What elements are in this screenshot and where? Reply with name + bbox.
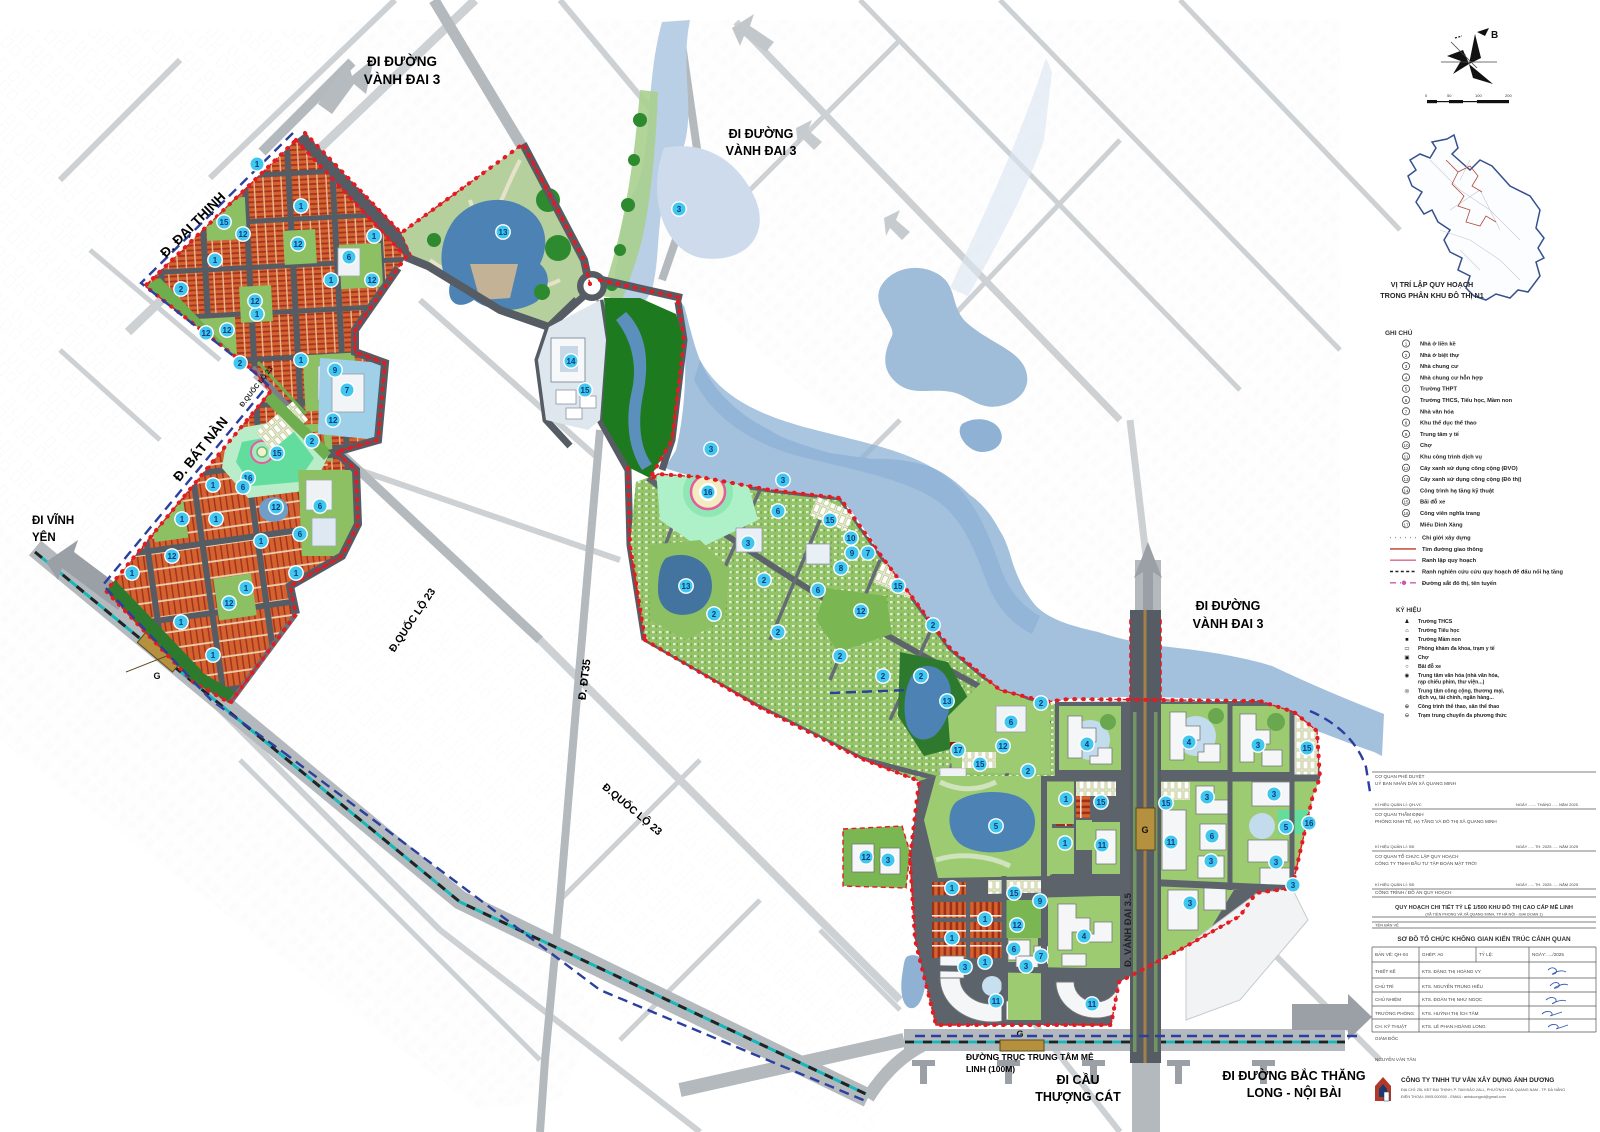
svg-text:G: G xyxy=(1141,825,1148,835)
svg-text:ĐI ĐƯỜNG: ĐI ĐƯỜNG xyxy=(367,54,437,69)
svg-text:2: 2 xyxy=(881,672,886,681)
svg-text:6: 6 xyxy=(816,586,821,595)
svg-text:13: 13 xyxy=(1403,477,1409,482)
svg-text:LINH (100M): LINH (100M) xyxy=(966,1064,1015,1074)
svg-text:12: 12 xyxy=(239,230,248,239)
svg-text:Nhà văn hóa: Nhà văn hóa xyxy=(1420,409,1455,415)
svg-text:Ranh nghiên cứu cứu quy hoạch: Ranh nghiên cứu cứu quy hoạch để đấu nối… xyxy=(1422,569,1563,576)
svg-text:6: 6 xyxy=(347,253,352,262)
svg-text:⊖: ⊖ xyxy=(1405,713,1410,719)
svg-text:1: 1 xyxy=(214,515,219,524)
svg-text:3: 3 xyxy=(1256,741,1261,750)
svg-text:12: 12 xyxy=(251,297,260,306)
svg-text:1: 1 xyxy=(259,537,264,546)
svg-text:Chợ: Chợ xyxy=(1420,443,1433,449)
svg-text:14: 14 xyxy=(1403,488,1409,493)
svg-text:11: 11 xyxy=(1167,838,1176,847)
svg-text:Trung tâm y tế: Trung tâm y tế xyxy=(1420,431,1460,438)
svg-text:Bãi đỗ xe: Bãi đỗ xe xyxy=(1418,663,1441,670)
svg-text:ĐIỆN THOẠI: 0905.000000 - EM: ĐIỆN THOẠI: 0905.000000 - EMAIL: anhduon… xyxy=(1401,1094,1506,1099)
svg-text:13: 13 xyxy=(943,697,952,706)
svg-text:CƠ QUAN PHÊ DUYỆT: CƠ QUAN PHÊ DUYỆT xyxy=(1375,772,1425,779)
svg-text:ĐỊA CHỈ: 25L KĐT ĐẠI THỊNH, P.: ĐỊA CHỈ: 25L KĐT ĐẠI THỊNH, P. TAM ĐẢO 2… xyxy=(1401,1087,1565,1092)
svg-text:17: 17 xyxy=(1403,522,1409,527)
svg-text:VÀNH ĐAI 3: VÀNH ĐAI 3 xyxy=(364,72,441,87)
svg-text:12: 12 xyxy=(168,552,177,561)
svg-text:9: 9 xyxy=(1405,432,1408,437)
svg-text:YÊN: YÊN xyxy=(32,531,56,544)
svg-text:2: 2 xyxy=(776,628,781,637)
svg-text:6: 6 xyxy=(1210,832,1215,841)
svg-text:PHÒNG KINH TẾ, HẠ TẦNG VÀ ĐÔ T: PHÒNG KINH TẾ, HẠ TẦNG VÀ ĐÔ THỊ XÃ QUAN… xyxy=(1375,818,1497,824)
svg-text:12: 12 xyxy=(857,607,866,616)
svg-text:CƠ QUAN TỔ CHỨC LẬP QUY HOẠCH: CƠ QUAN TỔ CHỨC LẬP QUY HOẠCH xyxy=(1375,853,1458,859)
svg-text:11: 11 xyxy=(1098,841,1107,850)
svg-text:4: 4 xyxy=(1085,740,1090,749)
svg-text:KÍ HIỆU QUẢN LÍ: QH-VC: KÍ HIỆU QUẢN LÍ: QH-VC xyxy=(1375,802,1422,807)
svg-text:1: 1 xyxy=(255,160,260,169)
svg-text:15: 15 xyxy=(1162,799,1171,808)
svg-text:Trường Mầm non: Trường Mầm non xyxy=(1418,637,1461,643)
svg-text:9: 9 xyxy=(850,549,855,558)
svg-text:3: 3 xyxy=(1272,790,1277,799)
svg-text:1: 1 xyxy=(983,958,988,967)
svg-text:1: 1 xyxy=(180,515,185,524)
svg-text:GHI CHÚ: GHI CHÚ xyxy=(1385,328,1413,337)
svg-text:3: 3 xyxy=(1024,962,1029,971)
svg-text:2: 2 xyxy=(712,610,717,619)
svg-text:3: 3 xyxy=(1291,881,1296,890)
svg-text:12: 12 xyxy=(202,329,211,338)
svg-text:Trường THPT: Trường THPT xyxy=(1420,387,1457,393)
svg-text:Công trình hạ tầng kỹ thuật: Công trình hạ tầng kỹ thuật xyxy=(1420,488,1494,494)
svg-text:17: 17 xyxy=(954,746,963,755)
svg-text:1: 1 xyxy=(130,569,135,578)
svg-text:12: 12 xyxy=(225,599,234,608)
svg-text:▭: ▭ xyxy=(1404,646,1410,652)
svg-text:6: 6 xyxy=(1012,945,1017,954)
svg-text:1: 1 xyxy=(211,481,216,490)
svg-text:KÍ HIỆU QUẢN LÍ: SĐ: KÍ HIỆU QUẢN LÍ: SĐ xyxy=(1375,844,1414,849)
svg-text:◎: ◎ xyxy=(1405,688,1410,694)
svg-text:Chỉ giới xây dựng: Chỉ giới xây dựng xyxy=(1422,536,1471,542)
svg-text:1: 1 xyxy=(244,584,249,593)
svg-text:15: 15 xyxy=(1403,500,1409,505)
svg-text:CHỦ TRÌ: CHỦ TRÌ xyxy=(1375,983,1394,989)
svg-text:GIÁM ĐỐC: GIÁM ĐỐC xyxy=(1375,1035,1399,1041)
svg-text:15: 15 xyxy=(273,449,282,458)
svg-text:4: 4 xyxy=(1187,738,1192,747)
svg-text:Phòng khám đa khoa, trạm y tế: Phòng khám đa khoa, trạm y tế xyxy=(1418,645,1495,652)
svg-text:2: 2 xyxy=(310,437,315,446)
svg-text:2: 2 xyxy=(762,576,767,585)
svg-text:(XÃ TIỀN PHONG VÀ XÃ QUANG MIN: (XÃ TIỀN PHONG VÀ XÃ QUANG MINH, TP HÀ N… xyxy=(1425,912,1543,917)
svg-text:Nhà chung cư: Nhà chung cư xyxy=(1420,364,1459,370)
svg-text:5: 5 xyxy=(1284,823,1289,832)
svg-text:♟: ♟ xyxy=(1404,618,1409,625)
svg-text:8: 8 xyxy=(1405,421,1408,426)
svg-text:7: 7 xyxy=(345,386,350,395)
svg-text:15: 15 xyxy=(1010,889,1019,898)
svg-text:1: 1 xyxy=(211,651,216,660)
svg-text:1: 1 xyxy=(294,569,299,578)
svg-text:LONG - NỘI BÀI: LONG - NỘI BÀI xyxy=(1247,1085,1341,1100)
svg-text:6: 6 xyxy=(776,507,781,516)
svg-text:2: 2 xyxy=(1405,353,1408,358)
svg-text:CƠ QUAN THẨM ĐỊNH: CƠ QUAN THẨM ĐỊNH xyxy=(1375,811,1424,817)
svg-text:Đường sắt đô thị, tên tuyến: Đường sắt đô thị, tên tuyến xyxy=(1422,580,1497,587)
svg-text:1: 1 xyxy=(372,232,377,241)
svg-text:Trạm trung chuyển đa phương th: Trạm trung chuyển đa phương thức xyxy=(1418,712,1507,719)
svg-text:NGÀY: ..../2025: NGÀY: ..../2025 xyxy=(1532,951,1564,957)
svg-text:B: B xyxy=(1491,30,1498,41)
svg-text:10: 10 xyxy=(1403,443,1409,448)
svg-text:Nhà chung cư hỗn hợp: Nhà chung cư hỗn hợp xyxy=(1420,374,1483,381)
svg-text:NGÀY ....... THÁNG ..... NĂM 2: NGÀY ....... THÁNG ..... NĂM 2025 xyxy=(1516,802,1579,807)
svg-text:Khu thể dục thể thao: Khu thể dục thể thao xyxy=(1420,420,1477,427)
svg-text:1: 1 xyxy=(299,356,304,365)
svg-text:KTS. ĐẶNG THỊ HOÀNG VY: KTS. ĐẶNG THỊ HOÀNG VY xyxy=(1422,968,1481,974)
svg-text:KTS. ĐOÀN THỊ NHƯ NGỌC: KTS. ĐOÀN THỊ NHƯ NGỌC xyxy=(1422,996,1483,1002)
svg-text:4: 4 xyxy=(1405,375,1408,380)
svg-text:3: 3 xyxy=(677,205,682,214)
svg-text:3: 3 xyxy=(963,963,968,972)
svg-text:VÀNH ĐAI 3: VÀNH ĐAI 3 xyxy=(1193,616,1264,631)
svg-text:ĐƯỜNG TRỤC TRUNG TÂM MÊ: ĐƯỜNG TRỤC TRUNG TÂM MÊ xyxy=(966,1051,1094,1062)
svg-text:12: 12 xyxy=(999,742,1008,751)
svg-text:2: 2 xyxy=(838,652,843,661)
svg-text:Trung tâm công cộng, thương mạ: Trung tâm công cộng, thương mại, xyxy=(1418,688,1505,694)
svg-text:1: 1 xyxy=(179,618,184,627)
svg-text:TÊN BẢN VẼ: TÊN BẢN VẼ xyxy=(1375,923,1399,928)
svg-text:○: ○ xyxy=(1405,664,1408,670)
svg-text:TRƯỞNG PHÒNG: TRƯỞNG PHÒNG xyxy=(1375,1010,1414,1016)
svg-text:ĐI ĐƯỜNG: ĐI ĐƯỜNG xyxy=(1196,598,1261,613)
svg-text:13: 13 xyxy=(682,582,691,591)
svg-text:8: 8 xyxy=(839,564,844,573)
svg-text:Bãi đỗ xe: Bãi đỗ xe xyxy=(1420,499,1445,506)
svg-text:1: 1 xyxy=(950,884,955,893)
svg-text:NGÀY ..... TH. 2025 ..... NĂM: NGÀY ..... TH. 2025 ..... NĂM 2025 xyxy=(1516,882,1579,887)
svg-text:16: 16 xyxy=(1403,511,1409,516)
svg-text:11: 11 xyxy=(1404,455,1409,460)
svg-text:ĐI VĨNH: ĐI VĨNH xyxy=(32,514,74,527)
svg-text:CHỦ NHIỆM: CHỦ NHIỆM xyxy=(1375,995,1401,1002)
svg-text:2: 2 xyxy=(238,359,243,368)
svg-text:Công viên nghĩa trang: Công viên nghĩa trang xyxy=(1420,511,1481,517)
svg-text:1: 1 xyxy=(1405,342,1408,347)
svg-text:2: 2 xyxy=(931,621,936,630)
svg-text:Đ. VÀNH ĐAI 3.5: Đ. VÀNH ĐAI 3.5 xyxy=(1123,892,1134,967)
svg-text:⊕: ⊕ xyxy=(1405,704,1410,710)
svg-text:12: 12 xyxy=(272,503,281,512)
svg-text:6: 6 xyxy=(318,502,323,511)
svg-text:Trung tâm văn hóa (nhà văn hóa: Trung tâm văn hóa (nhà văn hóa, xyxy=(1418,673,1500,679)
svg-text:16: 16 xyxy=(704,488,713,497)
svg-text:15: 15 xyxy=(894,582,903,591)
svg-text:ĐI ĐƯỜNG: ĐI ĐƯỜNG xyxy=(729,126,794,141)
svg-text:ĐI ĐƯỜNG BẮC THĂNG: ĐI ĐƯỜNG BẮC THĂNG xyxy=(1222,1068,1365,1083)
svg-text:TỶ LỆ:: TỶ LỆ: xyxy=(1479,950,1493,957)
svg-text:ĐI CẦU: ĐI CẦU xyxy=(1056,1072,1099,1087)
svg-text:3: 3 xyxy=(746,539,751,548)
svg-text:QUY HOẠCH CHI TIẾT TỶ LỆ 1/500: QUY HOẠCH CHI TIẾT TỶ LỆ 1/500 KHU ĐÔ TH… xyxy=(1395,903,1573,911)
svg-text:CÔNG TY TNHH ĐẦU TƯ TẬP ĐOÀN M: CÔNG TY TNHH ĐẦU TƯ TẬP ĐOÀN MẶT TRỜI xyxy=(1375,860,1477,866)
svg-text:15: 15 xyxy=(1303,744,1312,753)
svg-text:Trường THCS, Tiểu học, Mầm non: Trường THCS, Tiểu học, Mầm non xyxy=(1420,397,1513,404)
svg-text:12: 12 xyxy=(368,276,377,285)
svg-text:7: 7 xyxy=(866,549,871,558)
svg-text:5: 5 xyxy=(1405,387,1408,392)
svg-text:VỊ TRÍ LẬP QUY HOẠCH: VỊ TRÍ LẬP QUY HOẠCH xyxy=(1391,280,1473,289)
svg-text:15: 15 xyxy=(581,386,590,395)
svg-text:Khu công trình dịch vụ: Khu công trình dịch vụ xyxy=(1420,455,1482,461)
svg-text:12: 12 xyxy=(1403,466,1409,471)
svg-text:◉: ◉ xyxy=(1405,673,1410,679)
svg-text:6: 6 xyxy=(241,483,246,492)
svg-text:1: 1 xyxy=(299,202,304,211)
svg-text:200: 200 xyxy=(1505,93,1512,98)
svg-text:10: 10 xyxy=(847,534,856,543)
svg-text:⌂: ⌂ xyxy=(1405,628,1408,634)
svg-text:2: 2 xyxy=(1039,699,1044,708)
svg-text:3: 3 xyxy=(1405,364,1408,369)
svg-text:THIẾT KẾ: THIẾT KẾ xyxy=(1375,968,1396,974)
svg-text:15: 15 xyxy=(1097,798,1106,807)
svg-text:G: G xyxy=(153,671,160,681)
svg-text:15: 15 xyxy=(976,760,985,769)
svg-text:THƯỢNG CÁT: THƯỢNG CÁT xyxy=(1035,1089,1121,1104)
svg-text:7: 7 xyxy=(1405,409,1408,414)
svg-text:3: 3 xyxy=(1274,858,1279,867)
svg-text:Trường THCS: Trường THCS xyxy=(1418,619,1453,625)
svg-text:KTS. NGUYỄN TRUNG HIẾU: KTS. NGUYỄN TRUNG HIẾU xyxy=(1422,983,1483,989)
svg-text:NGUYỄN VĂN TÂN: NGUYỄN VĂN TÂN xyxy=(1375,1056,1416,1062)
svg-text:6: 6 xyxy=(1009,718,1014,727)
svg-text:▣: ▣ xyxy=(1404,655,1410,661)
svg-text:Cây xanh sử dụng công cộng (ĐV: Cây xanh sử dụng công cộng (ĐVO) xyxy=(1420,466,1518,472)
svg-text:Nhà ở biệt thự: Nhà ở biệt thự xyxy=(1420,353,1460,359)
svg-text:50: 50 xyxy=(1447,93,1452,98)
svg-text:rạp chiếu phim, thư viện...): rạp chiếu phim, thư viện...) xyxy=(1418,678,1485,685)
svg-text:3: 3 xyxy=(709,445,714,454)
svg-text:Công trình thể thao, sân thể t: Công trình thể thao, sân thể thao xyxy=(1418,703,1499,710)
svg-text:12: 12 xyxy=(223,326,232,335)
svg-text:3: 3 xyxy=(781,476,786,485)
svg-text:7: 7 xyxy=(1039,952,1044,961)
svg-text:12: 12 xyxy=(294,240,303,249)
svg-text:14: 14 xyxy=(567,357,576,366)
svg-text:NGÀY ..... TH. 2025 ..... NĂM: NGÀY ..... TH. 2025 ..... NĂM 2025 xyxy=(1516,844,1579,849)
svg-text:2: 2 xyxy=(919,672,924,681)
svg-text:dịch vụ, tài chính, ngân hàng.: dịch vụ, tài chính, ngân hàng... xyxy=(1418,695,1494,701)
svg-text:TRONG PHÂN KHU ĐÔ THỊ N1: TRONG PHÂN KHU ĐÔ THỊ N1 xyxy=(1380,291,1483,300)
svg-text:GHÉP: A0: GHÉP: A0 xyxy=(1422,951,1443,957)
svg-text:Ranh lập quy hoạch: Ranh lập quy hoạch xyxy=(1422,558,1477,564)
svg-text:9: 9 xyxy=(1038,897,1043,906)
svg-text:Tim đường giao thông: Tim đường giao thông xyxy=(1422,547,1483,553)
svg-text:KÍ HIỆU QUẢN LÍ: SĐ: KÍ HIỆU QUẢN LÍ: SĐ xyxy=(1375,882,1414,887)
svg-text:1: 1 xyxy=(255,310,260,319)
svg-text:13: 13 xyxy=(499,228,508,237)
svg-text:BẢN VẼ: QH-04: BẢN VẼ: QH-04 xyxy=(1375,951,1408,957)
svg-text:1: 1 xyxy=(950,934,955,943)
svg-text:KTS. HUỲNH THỊ ÍCH TÂM: KTS. HUỲNH THỊ ÍCH TÂM xyxy=(1422,1010,1479,1016)
svg-text:KTS. LÊ PHAN HOÀNG LONG: KTS. LÊ PHAN HOÀNG LONG xyxy=(1422,1022,1486,1029)
svg-text:1: 1 xyxy=(1064,795,1069,804)
svg-text:2: 2 xyxy=(1026,767,1031,776)
svg-text:15: 15 xyxy=(220,218,229,227)
svg-text:12: 12 xyxy=(862,853,871,862)
svg-text:1: 1 xyxy=(983,915,988,924)
svg-text:3: 3 xyxy=(1188,899,1193,908)
svg-text:1: 1 xyxy=(1063,839,1068,848)
svg-text:2: 2 xyxy=(179,285,184,294)
svg-text:11: 11 xyxy=(1088,1000,1097,1009)
svg-text:6: 6 xyxy=(1405,398,1408,403)
svg-text:KÝ HIỆU: KÝ HIỆU xyxy=(1396,606,1422,614)
svg-text:Miếu Dinh Xàng: Miếu Dinh Xàng xyxy=(1420,521,1463,528)
svg-text:G: G xyxy=(1016,1029,1023,1039)
svg-text:VÀNH ĐAI 3: VÀNH ĐAI 3 xyxy=(726,143,797,158)
svg-text:Chợ: Chợ xyxy=(1418,655,1429,661)
svg-text:1: 1 xyxy=(213,256,218,265)
svg-text:Trường Tiểu học: Trường Tiểu học xyxy=(1418,627,1459,634)
svg-text:100: 100 xyxy=(1475,93,1482,98)
svg-text:1: 1 xyxy=(329,276,334,285)
svg-text:11: 11 xyxy=(992,997,1001,1006)
svg-text:4: 4 xyxy=(1082,932,1087,941)
svg-text:3: 3 xyxy=(1205,793,1210,802)
svg-text:UỶ BAN NHÂN DÂN XÃ QUANG MINH: UỶ BAN NHÂN DÂN XÃ QUANG MINH xyxy=(1375,780,1456,786)
svg-text:5: 5 xyxy=(994,822,999,831)
svg-text:Nhà ở liền kề: Nhà ở liền kề xyxy=(1420,342,1456,348)
svg-text:3: 3 xyxy=(1209,857,1214,866)
svg-text:15: 15 xyxy=(826,516,835,525)
svg-text:12: 12 xyxy=(329,416,338,425)
svg-text:9: 9 xyxy=(333,366,338,375)
svg-text:3: 3 xyxy=(886,856,891,865)
svg-text:16: 16 xyxy=(1305,819,1314,828)
svg-text:Cây xanh sử dụng công cộng (Đô: Cây xanh sử dụng công cộng (Đô thị) xyxy=(1420,477,1522,483)
svg-text:6: 6 xyxy=(298,530,303,539)
svg-text:CÔNG TRÌNH / ĐỒ ÁN QUY HOẠCH: CÔNG TRÌNH / ĐỒ ÁN QUY HOẠCH xyxy=(1375,889,1451,895)
svg-text:CH. KỸ THUẬT: CH. KỸ THUẬT xyxy=(1375,1023,1407,1029)
svg-text:12: 12 xyxy=(1013,921,1022,930)
